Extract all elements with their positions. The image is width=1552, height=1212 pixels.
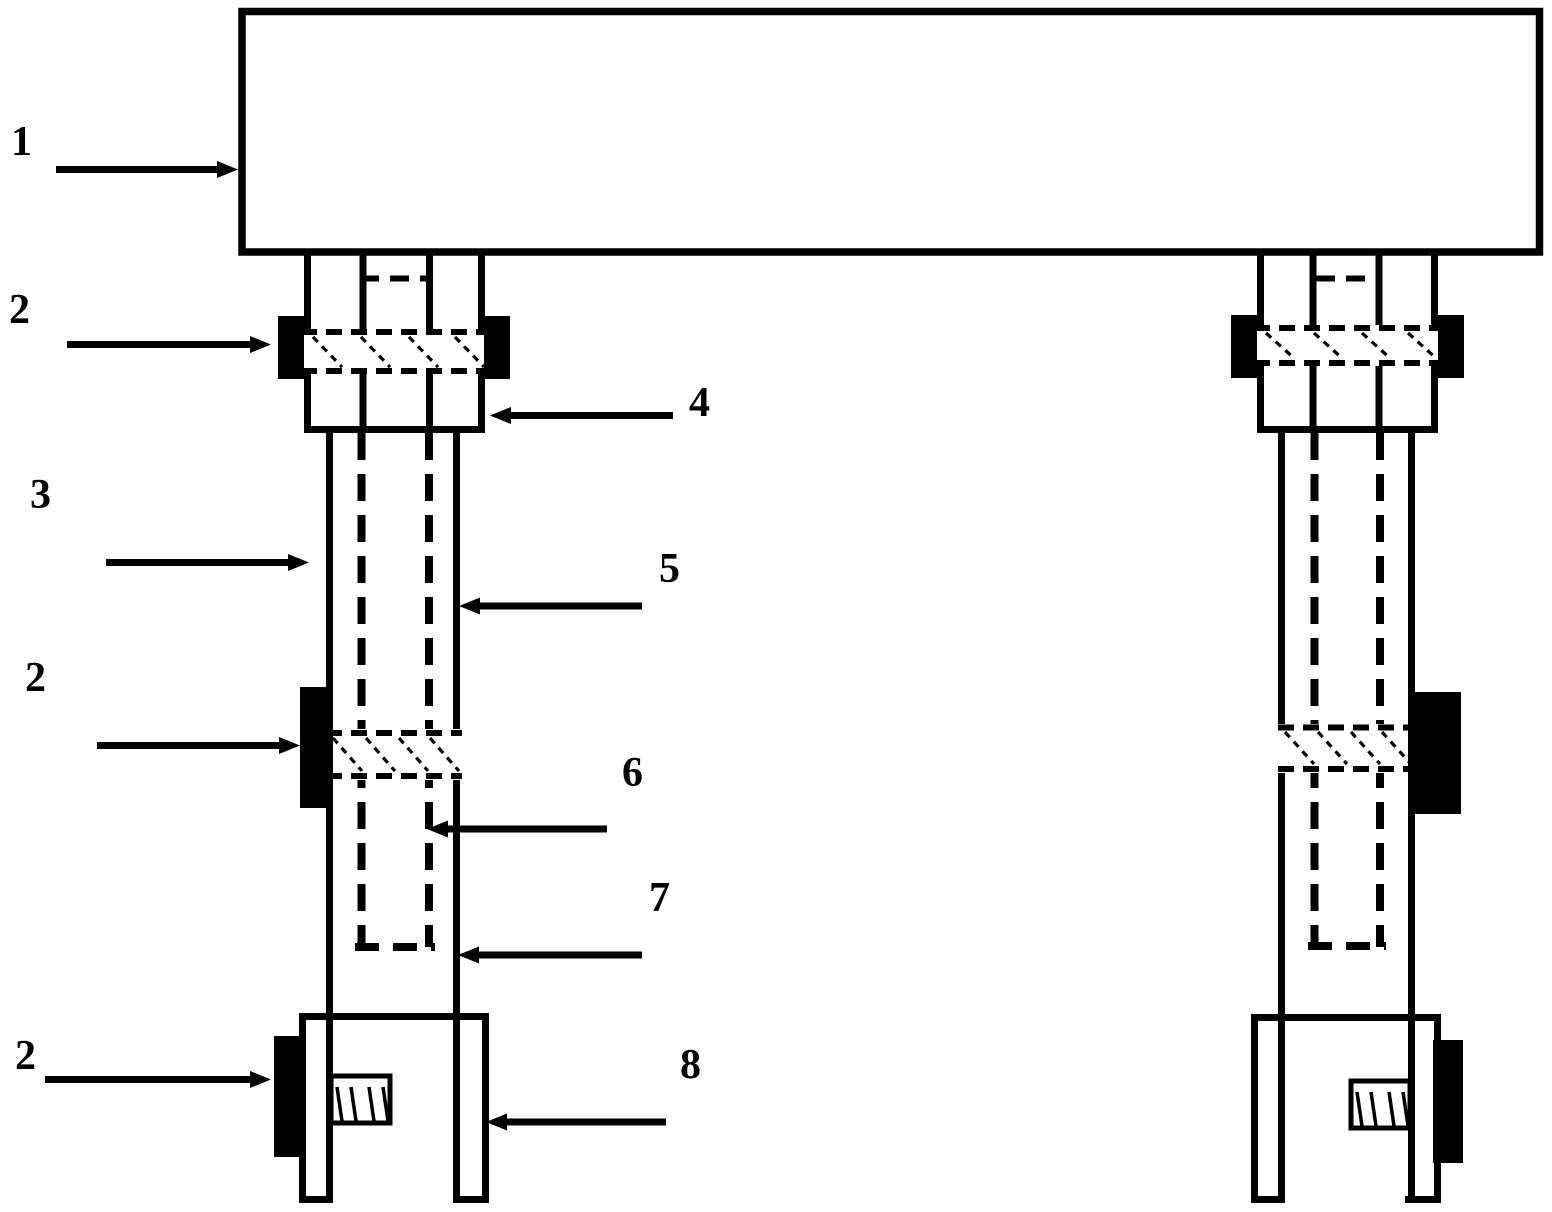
svg-text:3: 3 (30, 472, 51, 518)
svg-text:6: 6 (622, 750, 643, 796)
svg-text:1: 1 (11, 119, 32, 165)
svg-text:7: 7 (649, 875, 670, 921)
svg-text:4: 4 (689, 380, 710, 426)
svg-text:8: 8 (680, 1042, 701, 1088)
svg-text:2: 2 (9, 287, 30, 333)
svg-text:2: 2 (15, 1033, 36, 1079)
svg-text:2: 2 (25, 655, 46, 701)
svg-text:5: 5 (659, 546, 680, 592)
